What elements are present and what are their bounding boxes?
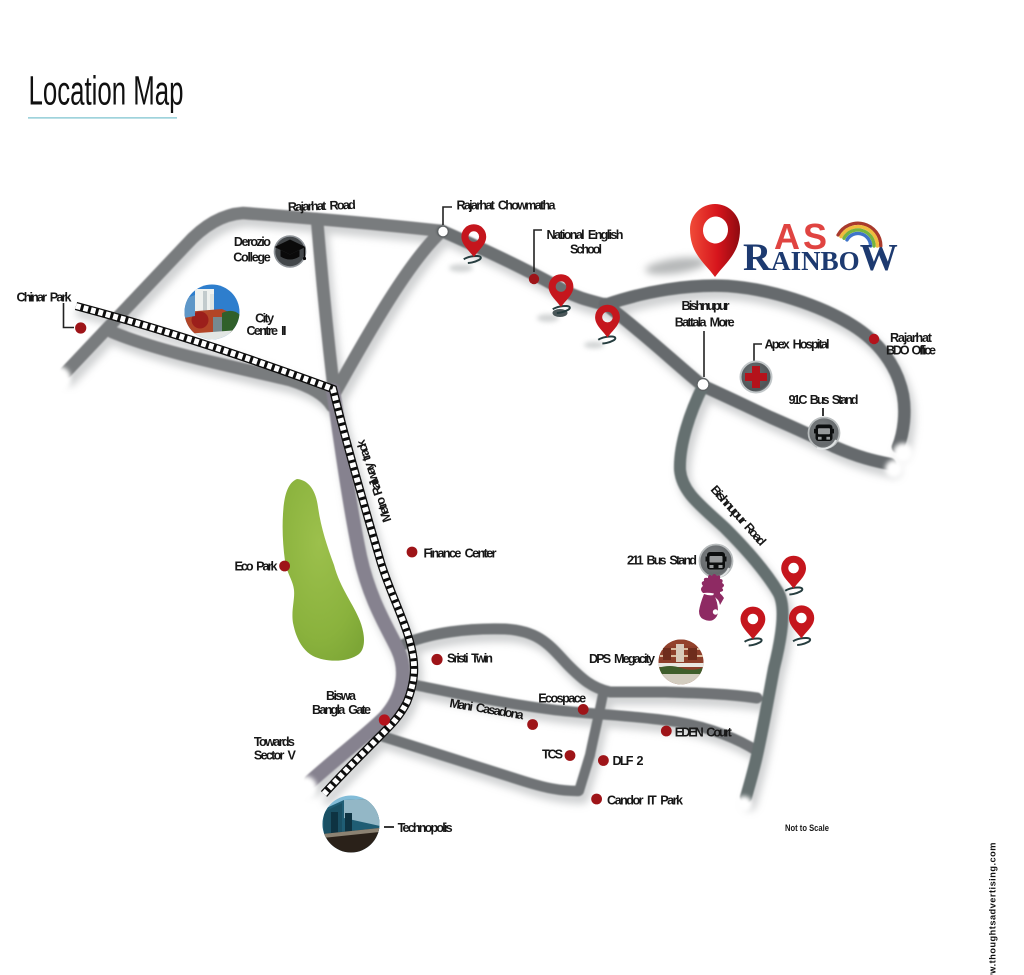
- svg-text:Finance Center: Finance Center: [424, 547, 497, 561]
- svg-text:211 Bus Stand: 211 Bus Stand: [627, 554, 697, 568]
- svg-text:Technopolis: Technopolis: [398, 821, 453, 835]
- svg-text:School: School: [570, 243, 602, 257]
- svg-text:91C Bus Stand: 91C Bus Stand: [789, 393, 859, 407]
- svg-text:Towards: Towards: [254, 735, 295, 749]
- svg-text:Location Map: Location Map: [29, 69, 184, 114]
- svg-text:Sristi Twin: Sristi Twin: [447, 652, 493, 666]
- svg-text:Bishnupur: Bishnupur: [682, 299, 730, 313]
- svg-text:Centre II: Centre II: [247, 324, 287, 338]
- svg-text:Sector V: Sector V: [254, 749, 297, 763]
- svg-text:National English: National English: [547, 228, 624, 242]
- svg-text:TCS: TCS: [542, 748, 563, 762]
- svg-text:Not to Scale: Not to Scale: [785, 823, 829, 834]
- svg-text:Ecospace: Ecospace: [538, 692, 586, 706]
- svg-text:www.thoughtsadvertising.com: www.thoughtsadvertising.com: [988, 842, 998, 975]
- svg-text:Eco Park: Eco Park: [235, 560, 279, 574]
- svg-text:DPS Megacity: DPS Megacity: [589, 652, 655, 666]
- svg-text:Rajarhat Chowmatha: Rajarhat Chowmatha: [457, 199, 557, 213]
- svg-text:Candor IT Park: Candor IT Park: [607, 794, 684, 808]
- svg-text:Rajarhat Road: Rajarhat Road: [288, 198, 356, 214]
- svg-text:Apex Hospital: Apex Hospital: [765, 338, 830, 352]
- svg-text:BDO Office: BDO Office: [886, 344, 936, 358]
- svg-text:Derozio: Derozio: [234, 235, 271, 249]
- svg-text:DLF 2: DLF 2: [613, 754, 644, 768]
- svg-text:Bangla Gate: Bangla Gate: [312, 703, 371, 717]
- svg-text:College: College: [233, 251, 271, 265]
- svg-text:Biswa: Biswa: [326, 689, 357, 703]
- svg-text:EDEN Court: EDEN Court: [675, 726, 733, 740]
- svg-text:Chinar Park: Chinar Park: [17, 291, 73, 305]
- svg-text:Battala More: Battala More: [675, 316, 735, 330]
